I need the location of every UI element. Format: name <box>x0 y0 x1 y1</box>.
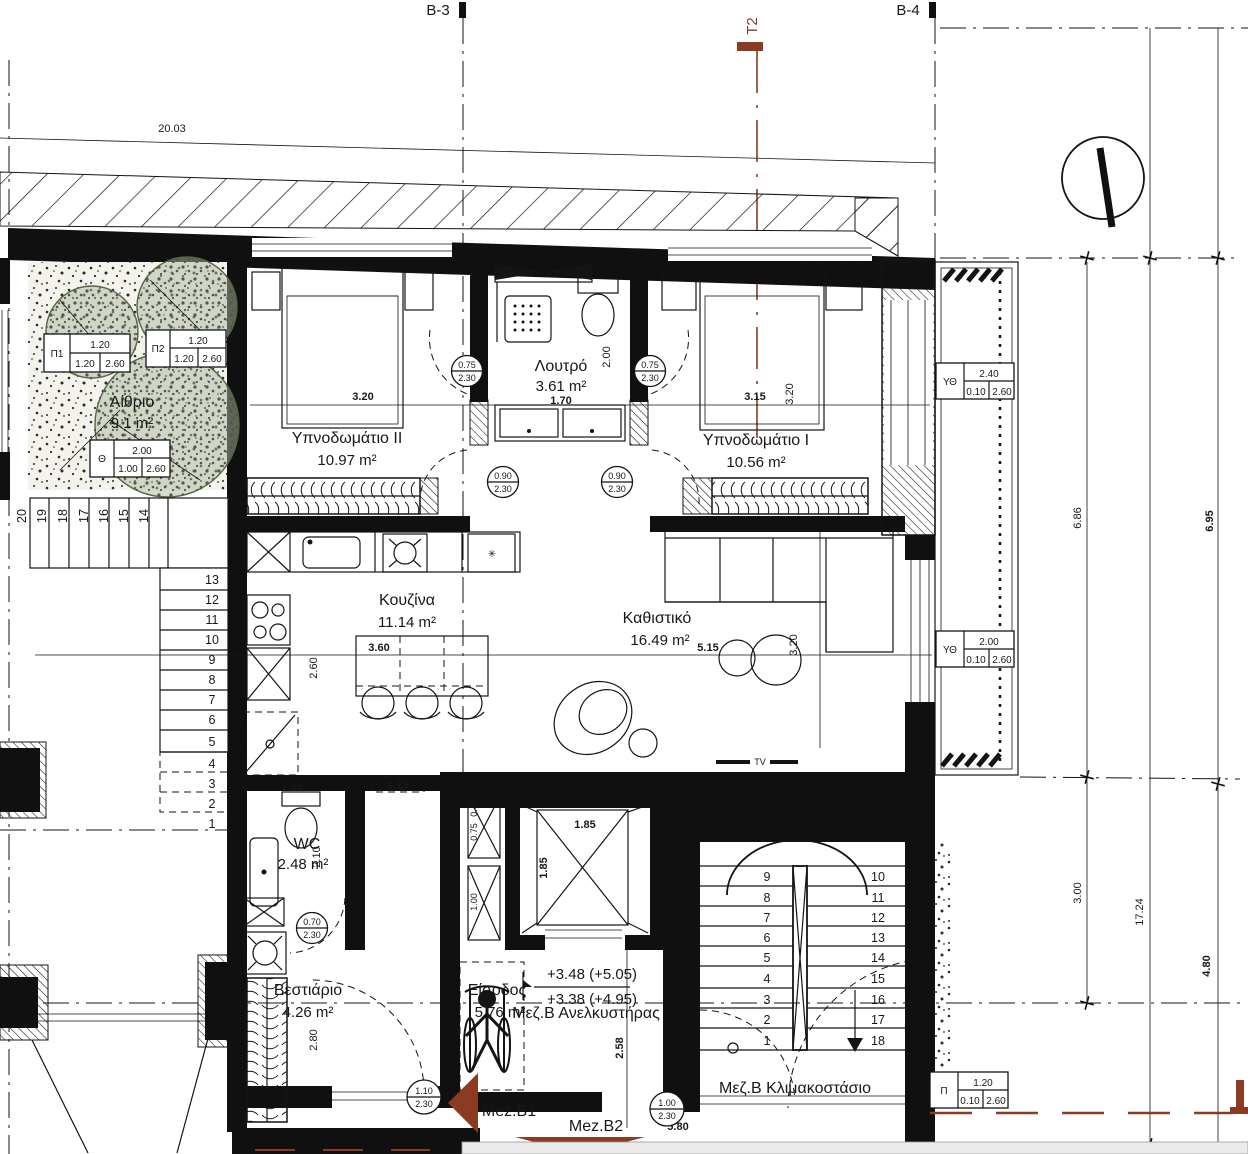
svg-text:2.40: 2.40 <box>979 369 999 380</box>
svg-text:0.90: 0.90 <box>494 471 512 481</box>
shower-drain-icon <box>514 305 541 332</box>
door-marker: 0.90 2.30 <box>602 467 633 498</box>
svg-text:6: 6 <box>209 713 216 727</box>
unit-b1-label: Mez.B1 <box>482 1103 536 1120</box>
svg-text:17: 17 <box>77 509 91 523</box>
atrium-area: 9.1 m² <box>111 415 154 432</box>
svg-text:18: 18 <box>56 509 70 523</box>
dimension-ticks <box>1078 249 1226 1153</box>
lift-width-dim: 1.85 <box>574 819 595 831</box>
svg-text:18: 18 <box>871 1034 885 1048</box>
kitchen: ✳ Κουζίνα 11.14 m² 3.60 2.60 <box>243 532 520 775</box>
living-area: 16.49 m² <box>630 632 689 649</box>
svg-text:Π: Π <box>940 1086 947 1097</box>
svg-text:2.00: 2.00 <box>979 637 999 648</box>
svg-text:2.30: 2.30 <box>494 484 512 494</box>
svg-text:6: 6 <box>764 931 771 945</box>
svg-text:16: 16 <box>871 993 885 1007</box>
hall-width-dim: 1.15 <box>387 780 408 792</box>
svg-text:1: 1 <box>209 817 216 831</box>
stairwell-label: Μεζ.Β Κλιμακοστάσιο <box>719 1080 871 1097</box>
door-marker: 1.00 2.30 <box>650 1092 684 1126</box>
dim-300: 3.00 <box>1072 882 1084 903</box>
north-indicator <box>1062 137 1144 227</box>
lift-label: Μεζ.Β Ανελκυστήρας <box>512 1005 660 1022</box>
bedroom-1-width-dim: 3.15 <box>744 391 765 403</box>
svg-text:11: 11 <box>872 891 885 905</box>
level-marks: +3.48 (+5.05) +3.38 (+4.95) <box>523 966 637 1008</box>
bathroom-depth-dim: 2.00 <box>601 346 613 367</box>
svg-text:ΥΘ: ΥΘ <box>943 645 957 656</box>
svg-text:4: 4 <box>209 757 216 771</box>
svg-text:11: 11 <box>206 613 219 627</box>
svg-text:2.60: 2.60 <box>992 387 1012 398</box>
level-upper: +3.48 (+5.05) <box>547 966 637 983</box>
svg-text:20: 20 <box>15 509 29 523</box>
window-schedule-p2: Π2 1.20 1.20 2.60 <box>146 330 226 367</box>
svg-text:16: 16 <box>97 509 111 523</box>
window-schedule-ut1: ΥΘ 2.40 0.10 2.60 <box>936 363 1014 399</box>
duct-dim-b: 0.75 <box>469 823 479 841</box>
dim-695: 6.95 <box>1204 510 1216 531</box>
dim-1724: 17.24 <box>1134 898 1146 926</box>
svg-text:1.20: 1.20 <box>75 359 95 370</box>
svg-text:ΥΘ: ΥΘ <box>943 377 957 388</box>
bathroom-area: 3.61 m² <box>536 378 587 395</box>
tv-label: TV <box>754 757 766 767</box>
balcony: ΥΘ 2.40 0.10 2.60 ΥΘ 2.00 0.10 2.60 <box>935 262 1018 775</box>
svg-text:1.00: 1.00 <box>118 464 138 475</box>
svg-text:2.30: 2.30 <box>458 373 476 383</box>
svg-text:1: 1 <box>764 1034 771 1048</box>
cloakroom-area: 4.26 m² <box>283 1004 334 1021</box>
svg-text:2: 2 <box>764 1013 771 1027</box>
armchair-icon <box>540 667 646 770</box>
svg-text:10: 10 <box>205 633 219 647</box>
svg-text:2.30: 2.30 <box>658 1111 676 1121</box>
outer-stair-numbers-top: 20 19 18 17 16 15 14 <box>15 509 151 523</box>
living-room: Καθιστικό 16.49 m² TV 5.15 3.20 <box>540 528 893 769</box>
unit-b2-label: Mez.B2 <box>569 1118 623 1135</box>
door-marker: 0.70 2.30 <box>297 913 328 944</box>
svg-text:2: 2 <box>209 797 216 811</box>
svg-text:0.70: 0.70 <box>303 917 321 927</box>
planter-hatch-icon <box>944 269 1002 281</box>
atrium-name: Αίθριο <box>110 394 155 411</box>
site-dimension: 20.03 <box>158 123 186 135</box>
wc: WC 2.48 m² 2.10 <box>244 792 345 974</box>
bathroom: Λουτρό 3.61 m² 1.70 2.00 <box>470 262 648 445</box>
section-label-t2: T2 <box>744 17 761 35</box>
svg-text:2.60: 2.60 <box>146 464 166 475</box>
kitchen-area: 11.14 m² <box>378 614 436 631</box>
grid-label-b3: B-3 <box>426 2 449 19</box>
svg-text:12: 12 <box>871 911 885 925</box>
stool-icon <box>448 687 484 719</box>
section-marker-t2: T2 <box>737 17 763 445</box>
duct-dim-a: 0.40 <box>469 799 479 817</box>
grid-label-b4: B-4 <box>896 2 919 19</box>
kitchen-depth-dim: 2.60 <box>308 657 320 678</box>
svg-text:1.00: 1.00 <box>658 1098 676 1108</box>
svg-text:19: 19 <box>35 509 49 523</box>
svg-text:2.00: 2.00 <box>132 446 152 457</box>
svg-text:Θ: Θ <box>98 454 106 465</box>
svg-text:2.60: 2.60 <box>992 655 1012 666</box>
svg-text:5: 5 <box>764 951 771 965</box>
window-schedule-ut2: ΥΘ 2.00 0.10 2.60 <box>936 631 1014 667</box>
svg-text:13: 13 <box>871 931 885 945</box>
floor-plan: B-3 B-4 T2 20.03 <box>0 0 1248 1154</box>
svg-text:0.10: 0.10 <box>966 655 986 666</box>
svg-text:1.20: 1.20 <box>174 354 194 365</box>
svg-text:8: 8 <box>764 891 771 905</box>
elevator: 0.40 0.75 1.00 1.85 1.85 <box>468 796 648 940</box>
stool-icon <box>404 687 440 719</box>
door-marker: 0.75 2.30 <box>452 356 483 387</box>
svg-text:14: 14 <box>871 951 885 965</box>
living-depth-dim: 3.20 <box>788 634 800 655</box>
svg-text:9: 9 <box>764 870 771 884</box>
cooktop-icon <box>383 534 427 572</box>
lobby-depth-dim: 2.58 <box>614 1037 626 1058</box>
cloakroom-name: Βεστιάριο <box>274 982 342 999</box>
svg-text:1.20: 1.20 <box>90 340 110 351</box>
bathroom-name: Λουτρό <box>535 358 588 375</box>
main-stair-numbers-right: 10 11 12 13 14 15 16 17 18 <box>871 870 885 1048</box>
window-schedule-p: Π 1.20 0.10 2.60 <box>930 1072 1008 1108</box>
wc-depth-dim: 2.10 <box>311 846 323 867</box>
tv-unit: TV <box>716 757 798 767</box>
bedroom-2-name: Υπνοδωμάτιο II <box>292 430 403 447</box>
svg-text:1.20: 1.20 <box>188 336 208 347</box>
window-schedule-p1: Π1 1.20 1.20 2.60 <box>44 334 130 372</box>
svg-text:5: 5 <box>209 735 216 749</box>
duct-dim-c: 1.00 <box>469 893 479 911</box>
wheelchair-icon <box>464 986 510 1072</box>
bottom-strip <box>462 1142 1248 1154</box>
floor-plan-page: B-3 B-4 T2 20.03 <box>0 0 1248 1154</box>
entry-depth-dim: 2.80 <box>308 1029 320 1050</box>
toilet-icon <box>578 278 618 336</box>
bedroom-1-area: 10.56 m² <box>726 454 785 471</box>
svg-text:2.30: 2.30 <box>608 484 626 494</box>
lift-depth-dim: 1.85 <box>538 857 550 878</box>
bedroom-1-depth-dim: 3.20 <box>784 383 796 404</box>
svg-text:1.20: 1.20 <box>973 1078 993 1089</box>
window-schedule-th: Θ 2.00 1.00 2.60 <box>90 440 170 477</box>
svg-text:Π2: Π2 <box>152 344 165 355</box>
kitchen-name: Κουζίνα <box>379 592 435 609</box>
svg-text:0.75: 0.75 <box>641 360 659 370</box>
entry-name: Είσοδος <box>468 982 527 999</box>
svg-text:12: 12 <box>205 593 219 607</box>
svg-text:1.10: 1.10 <box>415 1086 433 1096</box>
stool-icon <box>360 687 396 719</box>
svg-text:7: 7 <box>764 911 771 925</box>
svg-text:0.10: 0.10 <box>966 387 986 398</box>
svg-text:2.60: 2.60 <box>105 359 125 370</box>
living-name: Καθιστικό <box>623 610 692 627</box>
svg-text:3: 3 <box>209 777 216 791</box>
main-stair: 9 8 7 6 5 4 3 2 1 10 11 12 13 14 15 16 1… <box>700 840 935 1108</box>
svg-text:0.90: 0.90 <box>608 471 626 481</box>
dim-686: 6.86 <box>1072 507 1084 528</box>
bedroom-2: Υπνοδωμάτιο II 10.97 m² <box>247 268 438 514</box>
kitchen-width-dim: 3.60 <box>368 642 389 654</box>
door-marker: 0.75 2.30 <box>635 356 666 387</box>
svg-text:2.30: 2.30 <box>415 1099 433 1109</box>
bedroom-1-name: Υπνοδωμάτιο I <box>703 432 809 449</box>
svg-text:3: 3 <box>764 993 771 1007</box>
svg-text:7: 7 <box>209 693 216 707</box>
svg-text:10: 10 <box>871 870 885 884</box>
outer-stair: 20 19 18 17 16 15 14 13 12 11 10 9 8 7 6… <box>15 498 228 1153</box>
svg-text:2.60: 2.60 <box>202 354 222 365</box>
left-boundary <box>2 310 8 452</box>
svg-text:0.10: 0.10 <box>960 1096 980 1107</box>
dim-480: 4.80 <box>1201 955 1213 976</box>
svg-text:15: 15 <box>871 972 885 986</box>
living-width-dim: 5.15 <box>697 642 718 654</box>
svg-text:0.75: 0.75 <box>458 360 476 370</box>
svg-text:2.30: 2.30 <box>641 373 659 383</box>
svg-text:4: 4 <box>764 972 771 986</box>
bedroom-2-area: 10.97 m² <box>317 452 376 469</box>
svg-text:2.30: 2.30 <box>303 930 321 940</box>
door-marker: 0.90 2.30 <box>488 467 519 498</box>
svg-text:Π1: Π1 <box>51 349 64 360</box>
door-marker: 1.10 2.30 <box>407 1080 441 1114</box>
appliance-star: ✳ <box>488 549 496 560</box>
svg-text:17: 17 <box>871 1013 885 1027</box>
main-stair-numbers-left: 9 8 7 6 5 4 3 2 1 <box>764 870 771 1048</box>
svg-text:2.60: 2.60 <box>986 1096 1006 1107</box>
planter-hatch-icon <box>942 754 1000 766</box>
svg-text:15: 15 <box>117 509 131 523</box>
svg-text:14: 14 <box>137 509 151 523</box>
svg-text:8: 8 <box>209 673 216 687</box>
bedroom-2-width-dim: 3.20 <box>352 391 373 403</box>
burners-icon <box>247 595 290 645</box>
wc-width-dim: 1.35 <box>281 781 302 793</box>
svg-text:13: 13 <box>205 573 219 587</box>
